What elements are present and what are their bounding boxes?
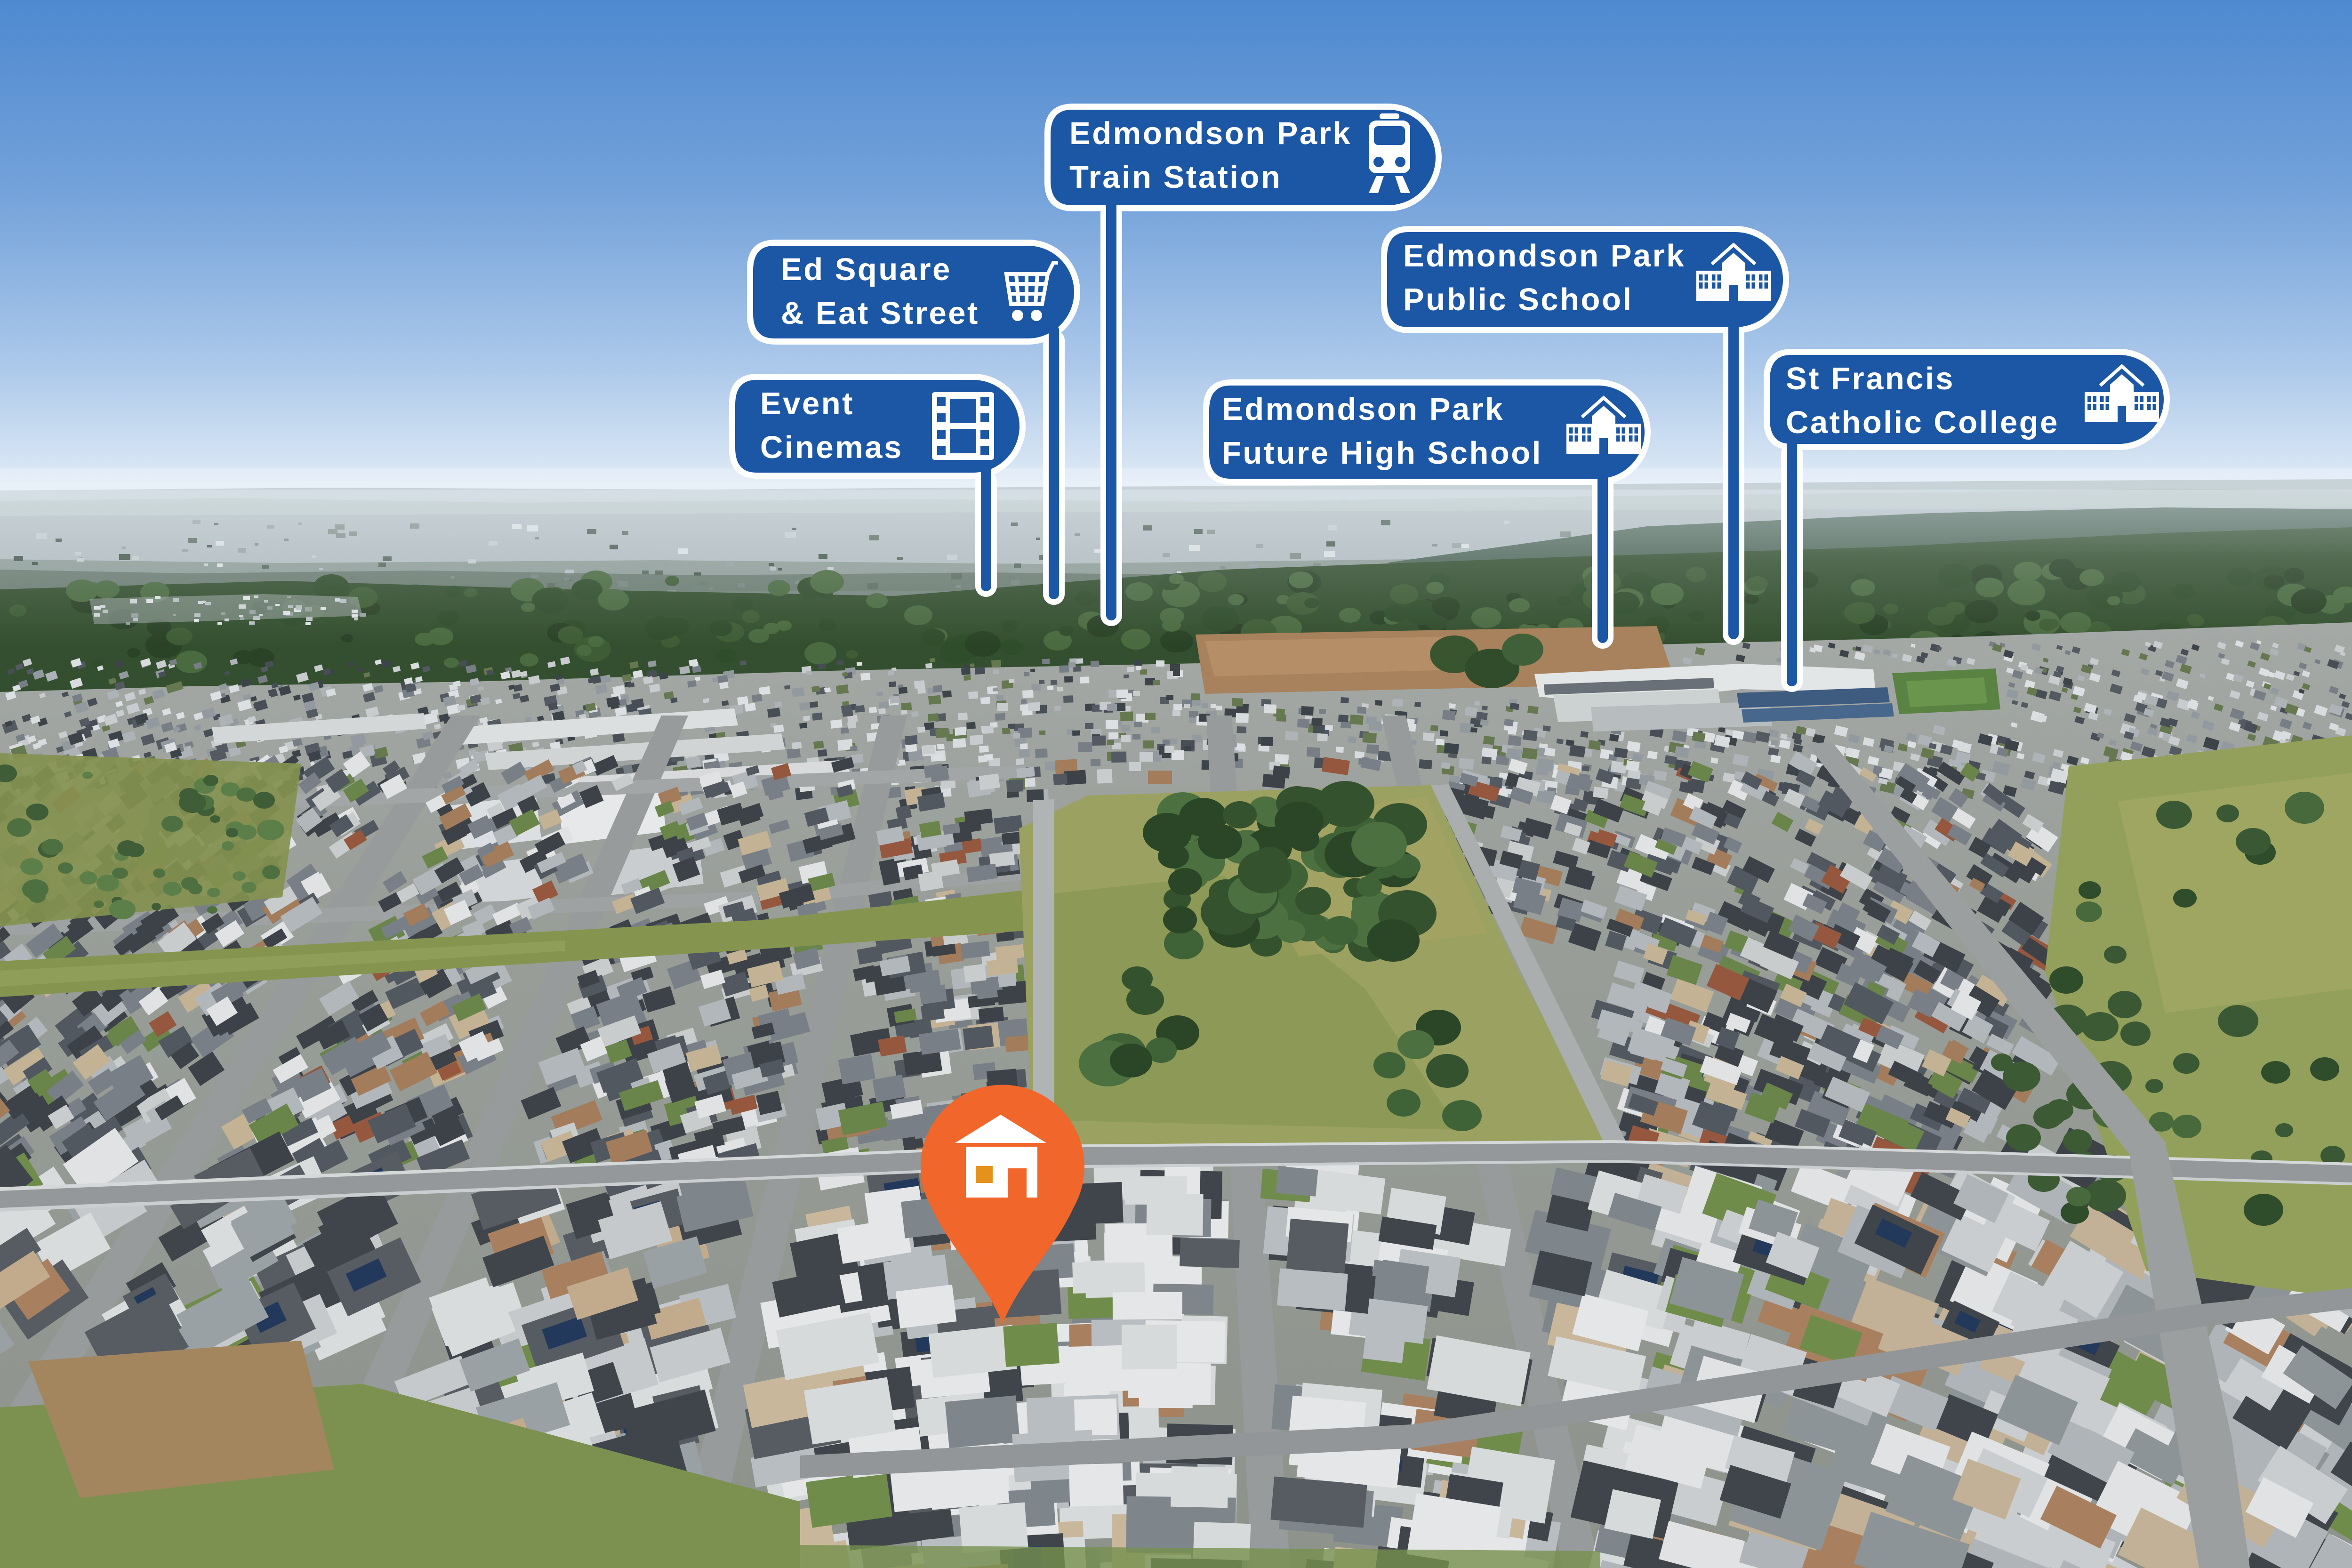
svg-text:Edmondson Park: Edmondson Park [1403, 238, 1686, 273]
svg-text:Future High School: Future High School [1222, 435, 1542, 471]
svg-text:Train Station: Train Station [1069, 160, 1282, 195]
svg-text:& Eat Street: & Eat Street [781, 296, 979, 331]
svg-text:Edmondson Park: Edmondson Park [1069, 116, 1352, 151]
svg-text:St Francis: St Francis [1786, 361, 1955, 396]
svg-text:Event: Event [760, 386, 854, 421]
svg-text:Ed Square: Ed Square [781, 252, 952, 287]
svg-text:Catholic College: Catholic College [1786, 405, 2059, 440]
svg-text:Public School: Public School [1403, 282, 1633, 317]
svg-text:Edmondson Park: Edmondson Park [1222, 392, 1504, 427]
svg-text:Cinemas: Cinemas [760, 430, 903, 465]
